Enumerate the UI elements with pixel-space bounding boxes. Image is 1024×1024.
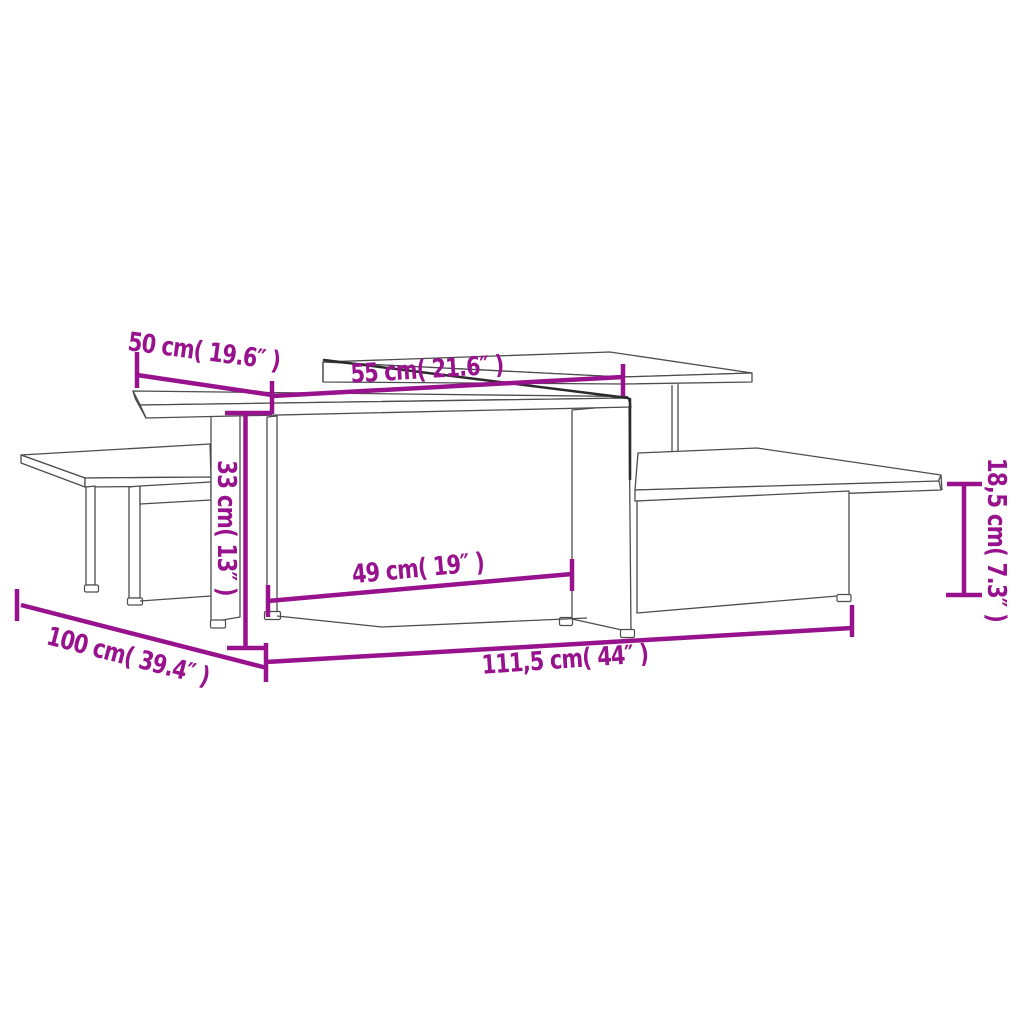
table-b-mid-support [672, 384, 678, 453]
dim-label-shelf-clearance: 18,5 cm( 7.3″ ) [983, 458, 1009, 622]
table-a-low-shelf-right [635, 448, 942, 613]
table-a-main-top [133, 391, 631, 418]
back-bottom-edge [277, 616, 587, 627]
dim-18-5cm [946, 484, 982, 595]
furniture-line-art [0, 0, 1024, 1024]
dimension-diagram: 50 cm( 19.6″ ) 55 cm( 21.6″ ) 33 cm( 13″… [0, 0, 1024, 1024]
table-b-low-shelf-left [21, 444, 211, 605]
support-panel-right [560, 405, 635, 638]
dim-label-total-height: 33 cm( 13″ ) [213, 460, 239, 596]
